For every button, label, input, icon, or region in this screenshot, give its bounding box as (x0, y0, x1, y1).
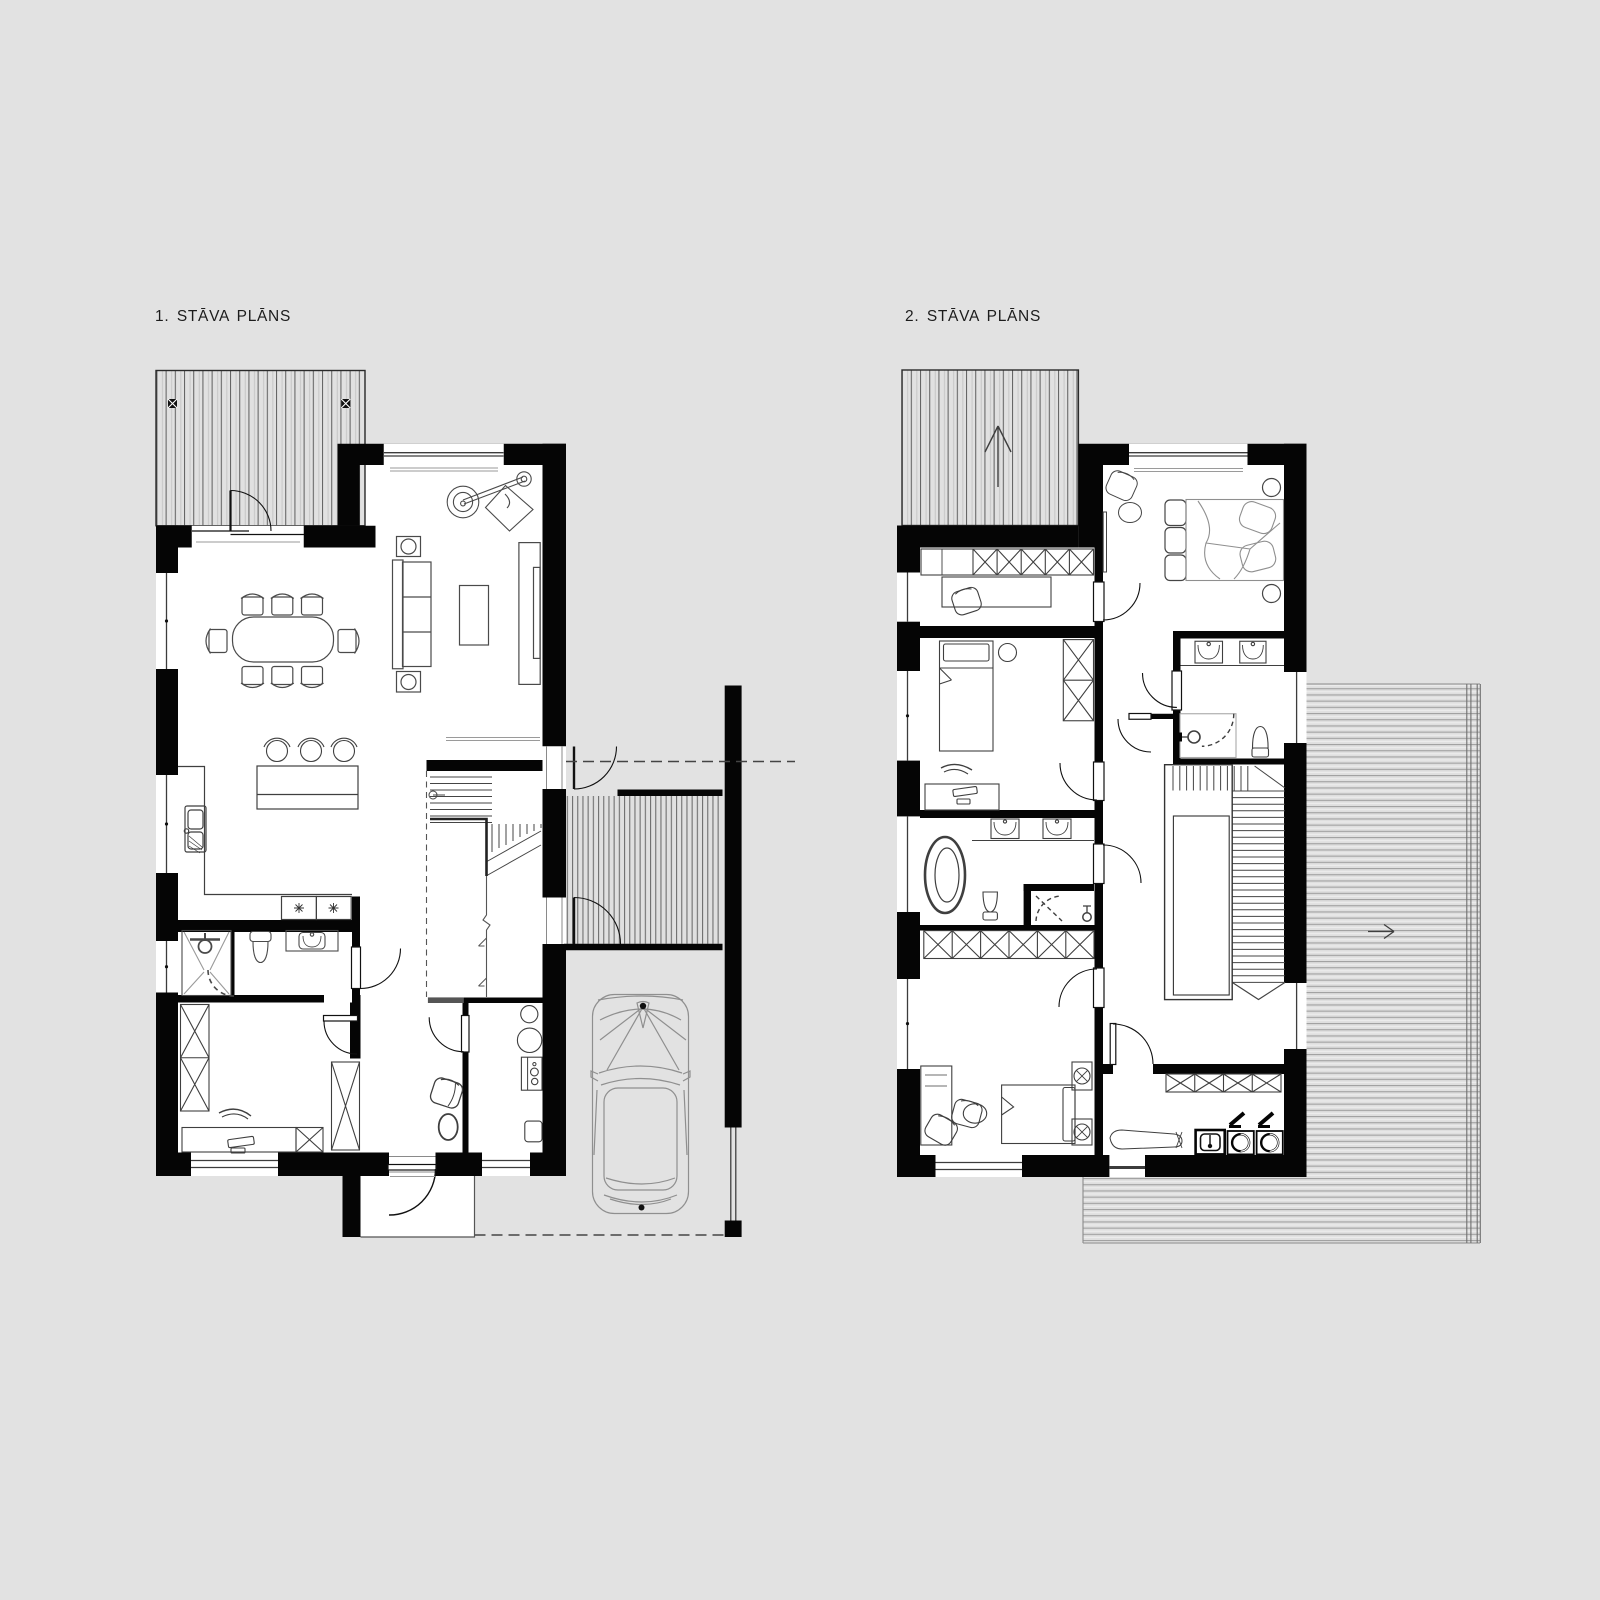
svg-text:1. STĀVA PLĀNS: 1. STĀVA PLĀNS (155, 308, 291, 325)
svg-text:2. STĀVA PLĀNS: 2. STĀVA PLĀNS (905, 308, 1041, 325)
